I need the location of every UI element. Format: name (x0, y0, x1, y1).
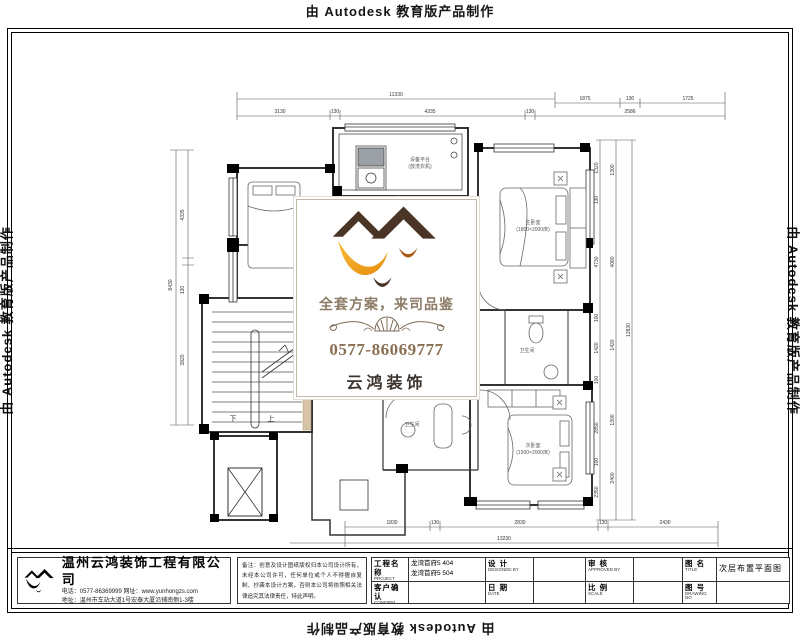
dim: 1320 (594, 162, 600, 173)
dim: 1830 (386, 520, 397, 526)
dim: 4335 (424, 109, 435, 115)
dim: 1300 (610, 164, 616, 175)
field-approve-value (633, 558, 682, 581)
bird-icon (398, 248, 416, 258)
room-label-platform: 设备平台 (410, 156, 430, 163)
dim: 1300 (610, 414, 616, 425)
field-design-label: 设 计 DESIGNED BY (485, 558, 533, 581)
dim: 2400 (610, 472, 616, 483)
field-project-value: 龙湾首府5 404 龙湾首府5 504 (408, 558, 485, 581)
dim: 130 (599, 520, 608, 526)
title-block: 温州云鸿装饰工程有限公司 电话：0577-86369999 网址：www.yun… (11, 552, 788, 608)
washer (356, 138, 457, 190)
dim: 100 (594, 314, 600, 323)
field-date-label: 日 期 DATE (485, 581, 533, 604)
field-date-value (533, 581, 585, 604)
fields-grid: 工程名称 PROJECT 龙湾首府5 404 龙湾首府5 504 设 计 DES… (371, 557, 790, 604)
drawing-sheet: 由 Autodesk 教育版产品制作 由 Autodesk 教育版产品制作 由 … (0, 0, 800, 640)
dim: 2830 (514, 520, 525, 526)
dim: 130 (526, 109, 535, 115)
center-logo-box: 全套方案，来司品鉴 0577-86069777 云鸿装饰 (296, 199, 477, 397)
stair-down-label: 下 (230, 415, 237, 423)
stair-up-label: 上 (268, 414, 275, 423)
room-label-master-sub: (1800×2000床) (516, 226, 550, 233)
field-title-value: 次层布置平面图 (716, 558, 789, 581)
roof-left-icon (332, 211, 384, 237)
logo-slogan: 全套方案，来司品鉴 (319, 294, 454, 314)
dim: 1875 (579, 96, 590, 102)
company-logo-icon (23, 564, 57, 598)
dim: 130 (626, 96, 635, 102)
dim: 3820 (180, 354, 186, 365)
ornament-flourish (324, 314, 450, 336)
field-approve-label: 审 核 APPROVED BY (585, 558, 633, 581)
field-label-en: DESIGNED BY (488, 568, 531, 573)
room-label-bath1: 卫生间 (404, 421, 419, 428)
field-title-label: 图 名 TITLE (682, 558, 716, 581)
project-value-2: 龙湾首府5 504 (411, 569, 483, 579)
company-phone-line: 电话：0577-86369999 网址：www.yunhongzs.com (62, 588, 225, 597)
field-no-value (716, 581, 789, 604)
field-label-en: TITLE (685, 568, 714, 573)
dim: 130 (431, 520, 440, 526)
dim: 1420 (610, 339, 616, 350)
field-label-en: APPROVED BY (588, 568, 631, 573)
field-no-label: 图 号 DRAWING NO (682, 581, 716, 604)
field-label-en: CONFIRM (374, 601, 406, 604)
room-label-bath2: 卫生间 (519, 347, 534, 354)
dim-left-overall: 8430 (168, 279, 174, 290)
dim: 100 (594, 376, 600, 385)
logo-brand: 云鸿装饰 (346, 369, 426, 393)
dim-bottom-overall: 13230 (497, 536, 511, 542)
dim: 130 (594, 196, 600, 205)
room-label-platform-sub: (放洗衣机) (408, 163, 432, 170)
room-label-bed2-sub: (1500×2000床) (516, 449, 550, 456)
room-label-bed2: 次卧室 (525, 442, 540, 449)
dim: 2350 (594, 486, 600, 497)
yunhong-logo (326, 200, 448, 292)
company-address-line: 地址：温州市车站大道1号宏泰大厦沿铺南侧1-3楼 (62, 597, 225, 606)
room-label-master: 主卧室 (525, 219, 540, 226)
logo-phone: 0577-86069777 (329, 340, 443, 360)
company-name: 温州云鸿装饰工程有限公司 (62, 555, 225, 588)
dim: 130 (180, 286, 186, 295)
dim-right-overall: 12830 (626, 323, 632, 337)
swoosh-icon (338, 240, 388, 275)
field-label-text: 客户确认 (374, 583, 406, 601)
field-scale-label: 比 例 SCALE (585, 581, 633, 604)
roof-right-icon (371, 206, 435, 238)
drawing-title-text: 次层布置平面图 (719, 559, 787, 578)
dim-top-overall: 11330 (389, 92, 403, 98)
field-confirm-label: 客户确认 CONFIRM (372, 581, 408, 604)
dim: 3130 (274, 109, 285, 115)
dim: 1725 (682, 96, 693, 102)
field-label-en: SCALE (588, 592, 631, 597)
field-scale-value (633, 581, 682, 604)
dim: 1420 (594, 342, 600, 353)
dim: 4335 (180, 209, 186, 220)
bird-icon (373, 277, 391, 287)
field-confirm-value (408, 581, 485, 604)
field-label-en: DATE (488, 592, 531, 597)
elevator (228, 468, 262, 516)
dim: 4730 (594, 256, 600, 267)
field-project-label: 工程名称 PROJECT (372, 558, 408, 581)
field-label-en: DRAWING NO (685, 592, 714, 602)
dim: 2430 (659, 520, 670, 526)
notes-section: 备注：创意及设计图纸版权归本公司设计所有，未经本公司许可，任何单位或个人不得擅自… (237, 557, 367, 604)
dim: 4080 (610, 256, 616, 267)
dim: 100 (594, 458, 600, 467)
dim: 2850 (594, 422, 600, 433)
company-section: 温州云鸿装饰工程有限公司 电话：0577-86369999 网址：www.yun… (17, 557, 231, 604)
field-label-text: 工程名称 (374, 559, 406, 577)
field-design-value (533, 558, 585, 581)
dim: 130 (331, 109, 340, 115)
staircase (212, 312, 306, 428)
project-value-1: 龙湾首府5 404 (411, 559, 483, 569)
dim: 2586 (624, 109, 635, 115)
